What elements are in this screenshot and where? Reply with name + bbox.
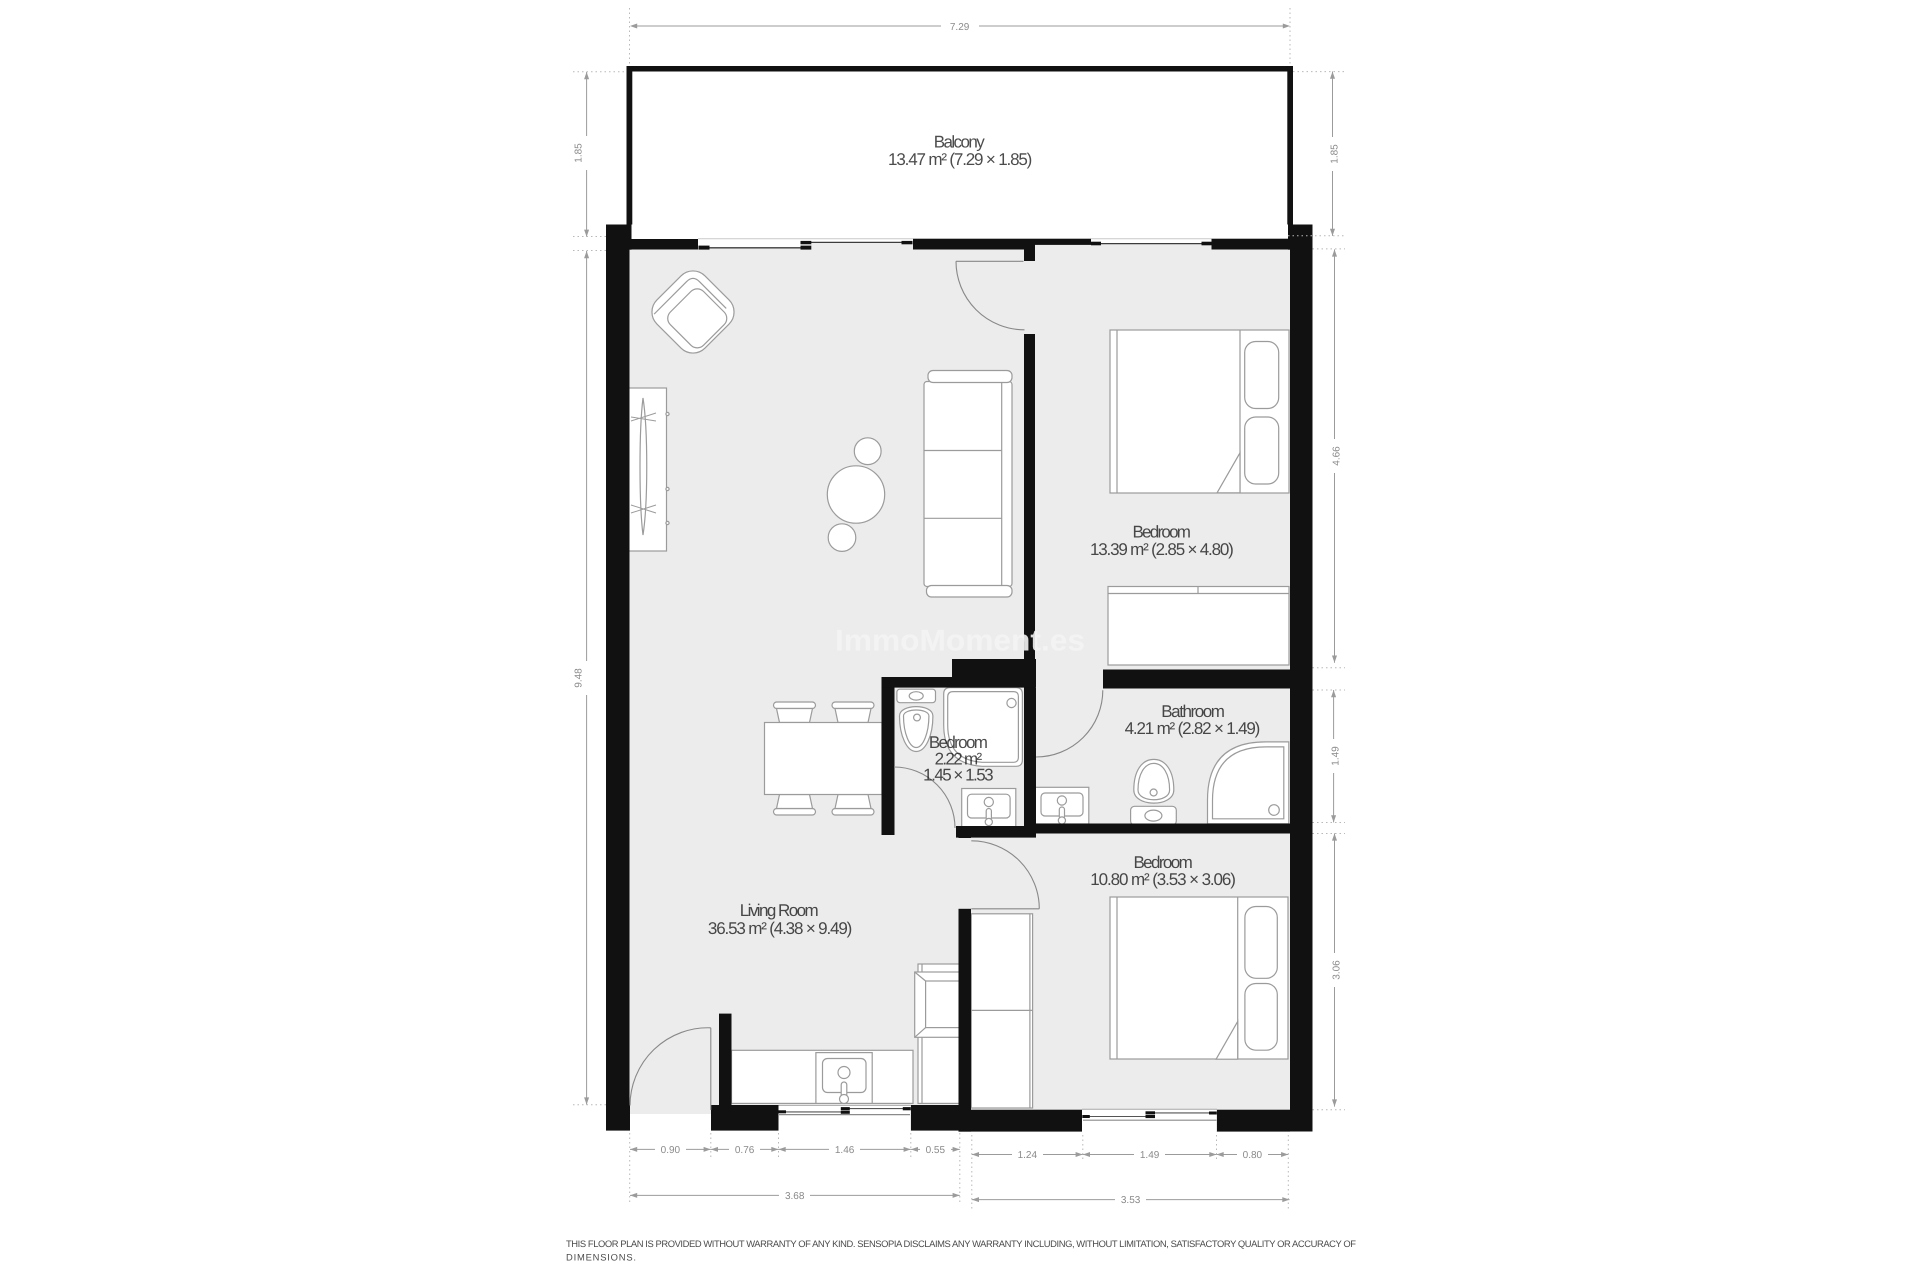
svg-text:ImmoMoment.es: ImmoMoment.es [835,625,1085,658]
svg-text:1.85: 1.85 [1330,144,1341,164]
svg-text:0.76: 0.76 [735,1145,755,1156]
svg-text:1.24: 1.24 [1018,1150,1038,1161]
svg-text:13.39 m² (2.85 × 4.80): 13.39 m² (2.85 × 4.80) [1090,540,1234,559]
svg-text:0.80: 0.80 [1243,1150,1263,1161]
svg-text:13.47 m² (7.29 × 1.85): 13.47 m² (7.29 × 1.85) [888,150,1032,169]
svg-text:3.68: 3.68 [785,1191,805,1202]
svg-text:Bathroom: Bathroom [1161,702,1225,721]
svg-text:1.49: 1.49 [1331,746,1342,766]
svg-text:1.49: 1.49 [1140,1150,1160,1161]
svg-text:THIS FLOOR PLAN IS PROVIDED WI: THIS FLOOR PLAN IS PROVIDED WITHOUT WARR… [566,1238,1356,1249]
svg-text:4.66: 4.66 [1332,446,1343,466]
svg-text:7.29: 7.29 [950,22,970,33]
svg-text:3.06: 3.06 [1332,960,1343,980]
svg-text:Bedroom: Bedroom [1132,522,1191,541]
svg-text:10.80 m² (3.53 × 3.06): 10.80 m² (3.53 × 3.06) [1090,870,1236,889]
svg-text:0.90: 0.90 [661,1145,681,1156]
svg-text:9.48: 9.48 [574,668,585,688]
svg-text:1.85: 1.85 [574,143,585,163]
svg-text:Balcony: Balcony [934,132,986,151]
svg-text:36.53 m² (4.38 × 9.49): 36.53 m² (4.38 × 9.49) [708,919,852,938]
svg-text:1.46: 1.46 [835,1145,855,1156]
svg-text:Living Room: Living Room [740,901,819,920]
svg-text:4.21 m² (2.82 × 1.49): 4.21 m² (2.82 × 1.49) [1125,719,1261,738]
svg-text:1.45 × 1.53: 1.45 × 1.53 [923,766,994,785]
svg-text:0.55: 0.55 [926,1145,946,1156]
svg-text:DIMENSIONS.: DIMENSIONS. [566,1252,636,1263]
svg-text:3.53: 3.53 [1121,1195,1141,1206]
